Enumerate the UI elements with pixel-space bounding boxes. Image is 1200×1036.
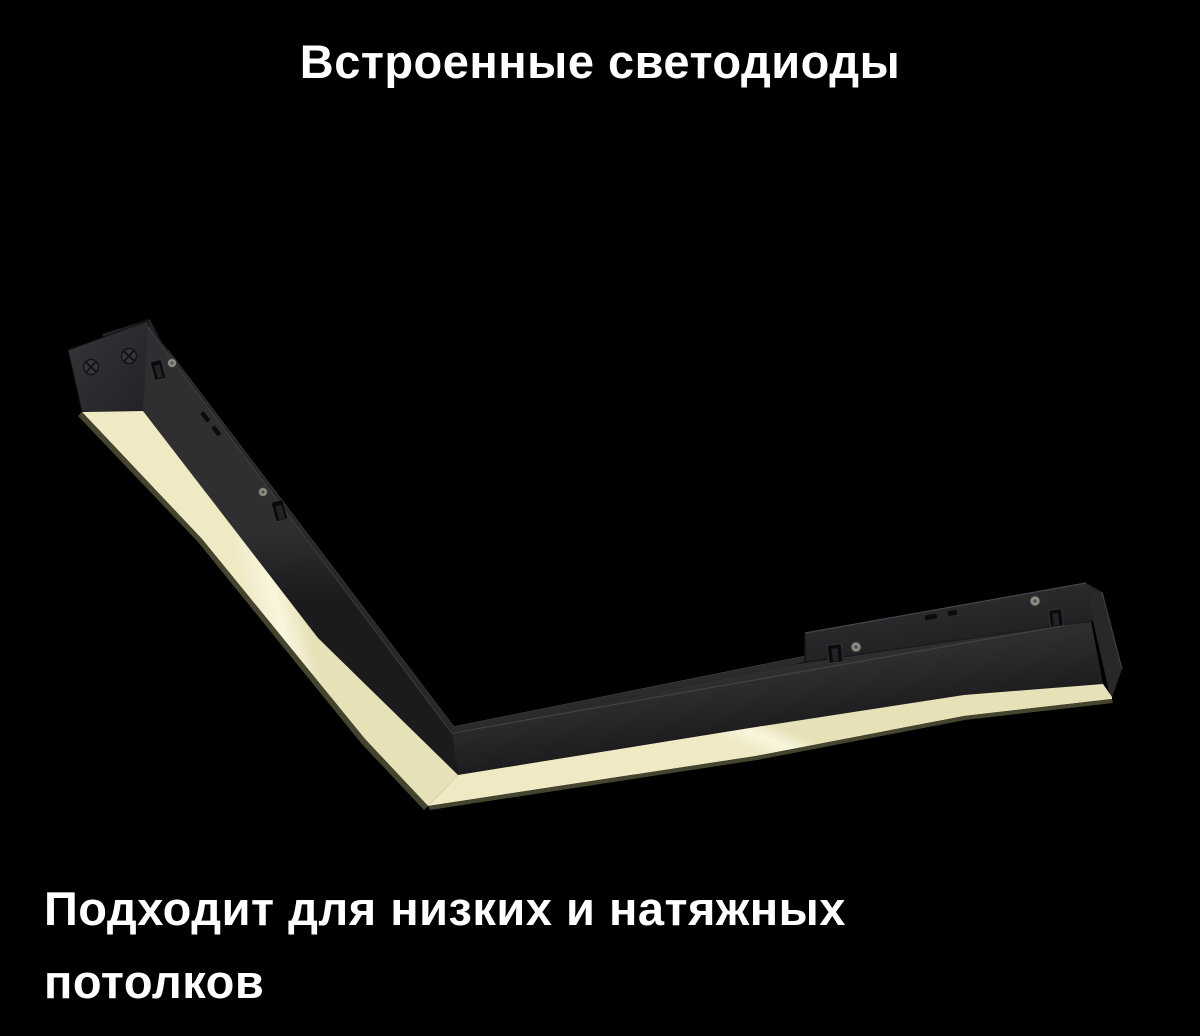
housing-side-face-left	[143, 327, 458, 775]
right-arm	[428, 583, 1122, 810]
left-arm	[68, 319, 470, 810]
caption: Подходит для низких и натяжных потолков	[44, 872, 846, 1018]
screw	[1030, 596, 1040, 606]
phillips-screw	[122, 349, 137, 364]
screw	[168, 359, 177, 368]
caption-line-1: Подходит для низких и натяжных	[44, 872, 846, 945]
screw	[851, 642, 861, 652]
phillips-screw	[84, 360, 99, 375]
mounting-clip	[1049, 609, 1064, 627]
led-diffuser-left	[82, 411, 458, 806]
caption-line-2: потолков	[44, 945, 846, 1018]
product-slide: Встроенные светодиоды	[0, 0, 1200, 1036]
screw	[259, 488, 268, 497]
mounting-clip	[827, 644, 843, 664]
